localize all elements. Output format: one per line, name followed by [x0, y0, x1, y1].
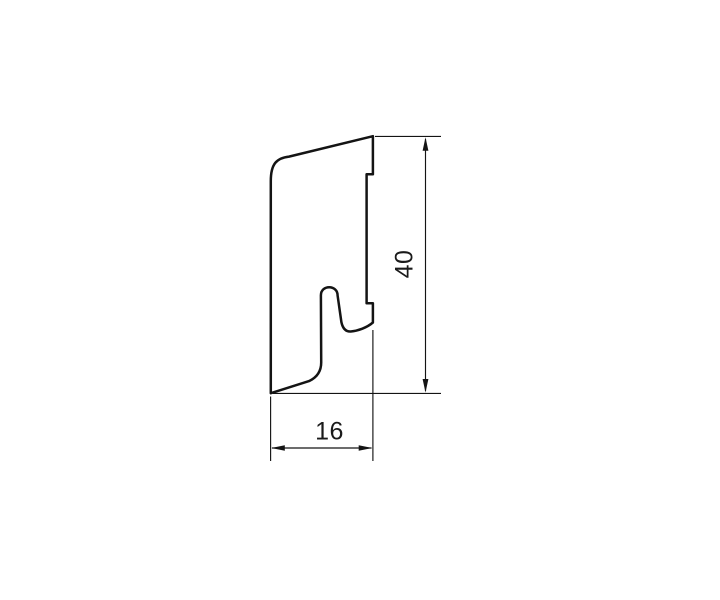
- arrowhead-left-icon: [271, 445, 285, 451]
- dimension-height-label: 40: [391, 250, 419, 279]
- arrowhead-right-icon: [359, 445, 373, 451]
- profile-drawing: 40 16: [0, 0, 720, 600]
- profile-outline: [271, 136, 373, 393]
- arrowhead-up-icon: [423, 137, 429, 151]
- dimension-height: 40: [273, 136, 441, 393]
- dimension-width-label: 16: [315, 418, 344, 446]
- arrowhead-down-icon: [423, 379, 429, 393]
- drawing-page: 40 16: [0, 0, 720, 600]
